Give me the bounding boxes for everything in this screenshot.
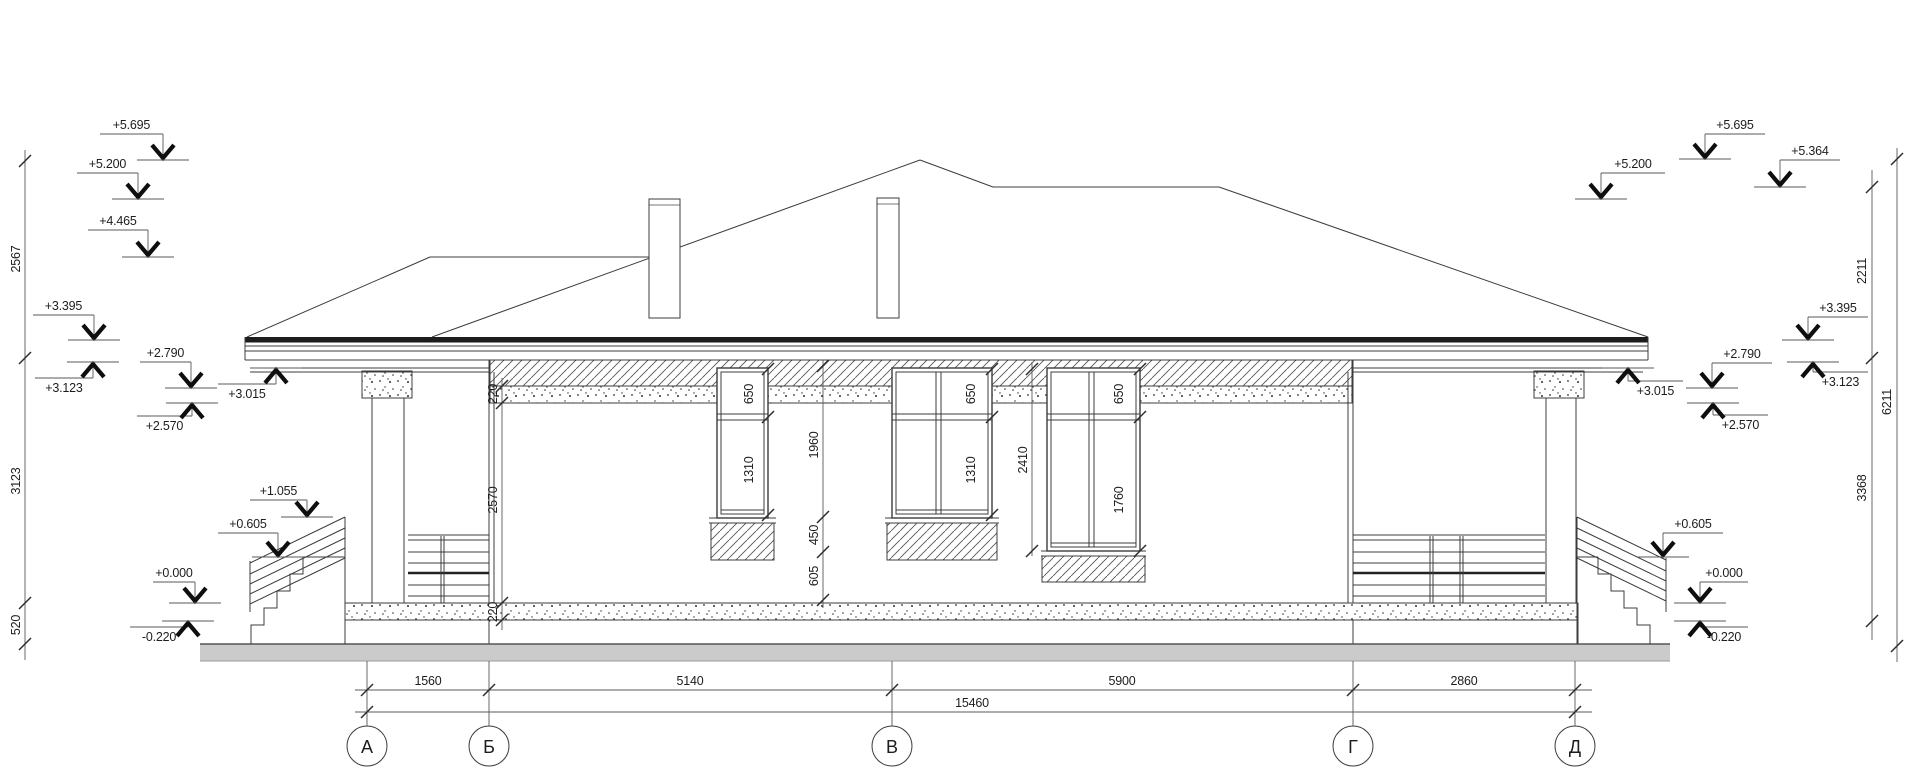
dim-value: 450 (807, 525, 821, 546)
dim-value: 2211 (1855, 258, 1869, 284)
level-value: +0.605 (1674, 517, 1712, 531)
chimney-left (649, 199, 680, 318)
dim-value: 650 (964, 384, 978, 405)
axis-a: А (361, 737, 373, 757)
level-value: -0.220 (142, 630, 176, 644)
elevation-drawing: 1560 5140 5900 2860 15460 А Б В Г Д +5.6… (0, 0, 1920, 778)
level-mark: +5.695 (1679, 118, 1765, 159)
level-mark: +3.015 (218, 368, 302, 401)
dim-value: 650 (742, 384, 756, 405)
dim-value: 3368 (1855, 474, 1869, 501)
level-value: +0.000 (1705, 566, 1743, 580)
level-mark: -0.220 (130, 621, 214, 644)
window-3-sill (1041, 551, 1146, 556)
roof (247, 160, 1648, 337)
dim-value: 650 (1112, 384, 1126, 405)
axis-v: В (886, 737, 898, 757)
level-value: +5.200 (1614, 157, 1652, 171)
dim-value: 6211 (1880, 389, 1894, 415)
window-2-apron (887, 523, 997, 560)
level-mark: -0.220 (1674, 621, 1748, 644)
column-capital (362, 371, 412, 398)
dim-value: 2570 (486, 486, 500, 513)
dim-value: 2410 (1016, 446, 1030, 473)
chimney-right (877, 198, 899, 318)
dim-value: 1310 (742, 456, 756, 483)
level-mark: +3.395 (1782, 301, 1868, 340)
porch-roof-slope (247, 257, 430, 337)
railing-right (1353, 535, 1545, 603)
level-mark: +5.200 (1575, 157, 1665, 199)
window-1-sill (709, 518, 776, 523)
dim-value: 220 (486, 384, 500, 405)
foundation (345, 620, 1578, 644)
level-mark: +0.000 (1674, 566, 1748, 603)
level-value: +3.123 (45, 381, 83, 395)
level-value: -0.220 (1707, 630, 1741, 644)
dim-value: 2567 (9, 245, 23, 272)
dim-value: 520 (9, 615, 23, 636)
level-mark: +5.695 (100, 118, 189, 160)
stairs-right (1577, 517, 1666, 644)
porch-column-left (362, 371, 412, 603)
ground-strip (200, 644, 1670, 661)
level-mark: +2.570 (137, 403, 218, 433)
dim-total: 15460 (955, 696, 989, 710)
level-value: +2.790 (147, 346, 185, 360)
dim-value: 220 (486, 602, 500, 623)
roof-right-slope-upper (920, 160, 993, 187)
axis-bubbles: А Б В Г Д (347, 726, 1595, 766)
window-3 (1041, 368, 1146, 582)
level-mark: +0.605 (218, 517, 304, 557)
window-3-apron (1042, 556, 1145, 582)
level-value: +5.695 (1716, 118, 1754, 132)
dim-v-g: 5900 (1108, 674, 1135, 688)
window-2 (885, 368, 999, 560)
elevation-sheet: 1560 5140 5900 2860 15460 А Б В Г Д +5.6… (0, 0, 1920, 778)
level-value: +4.465 (99, 214, 137, 228)
dim-a-b: 1560 (414, 674, 441, 688)
level-mark: +2.570 (1687, 403, 1768, 432)
level-mark: +3.395 (33, 299, 120, 340)
level-value: +0.605 (229, 517, 267, 531)
level-mark: +0.605 (1637, 517, 1723, 557)
axis-g: Г (1348, 737, 1358, 757)
eaves-fascia (245, 337, 1648, 360)
dim-value: 605 (807, 566, 821, 587)
dimension-lines-bottom: 1560 5140 5900 2860 15460 (355, 661, 1592, 726)
axis-d: Д (1569, 737, 1581, 757)
level-value: +2.570 (146, 419, 184, 433)
level-value: +3.015 (228, 387, 266, 401)
level-value: +0.000 (155, 566, 193, 580)
dim-g-d: 2860 (1450, 674, 1477, 688)
stairs-left (250, 517, 345, 644)
level-value: +3.015 (1637, 384, 1675, 398)
level-mark: +5.200 (77, 157, 164, 199)
level-value: +5.200 (89, 157, 127, 171)
level-value: +3.395 (45, 299, 83, 313)
dim-value: 1960 (807, 431, 821, 458)
column-capital (1534, 371, 1584, 398)
level-value: +2.570 (1722, 418, 1760, 432)
dim-value: 1760 (1112, 486, 1126, 513)
railing-left (408, 535, 489, 603)
level-mark: +3.123 (1787, 362, 1868, 389)
level-value: +1.055 (260, 484, 298, 498)
level-value: +5.695 (113, 118, 151, 132)
axis-b: Б (483, 737, 495, 757)
plinth-band (345, 603, 1578, 620)
porch-beam-right (1353, 368, 1643, 372)
roof-right-slope (1219, 187, 1648, 337)
level-mark: +4.465 (88, 214, 174, 257)
level-mark: +5.364 (1754, 144, 1840, 187)
window-1-apron (711, 523, 774, 560)
level-mark: +2.790 (1686, 347, 1772, 388)
level-value: +5.364 (1791, 144, 1829, 158)
level-mark: +2.790 (140, 346, 217, 388)
level-value: +3.395 (1819, 301, 1857, 315)
dim-b-v: 5140 (676, 674, 703, 688)
level-value: +3.123 (1822, 375, 1860, 389)
level-mark: +0.000 (153, 566, 221, 603)
window-2-sill (885, 518, 999, 523)
level-mark: +3.123 (35, 362, 119, 395)
dim-value: 3123 (9, 467, 23, 494)
level-mark: +1.055 (250, 484, 333, 517)
level-value: +2.790 (1723, 347, 1761, 361)
dim-value: 1310 (964, 456, 978, 483)
